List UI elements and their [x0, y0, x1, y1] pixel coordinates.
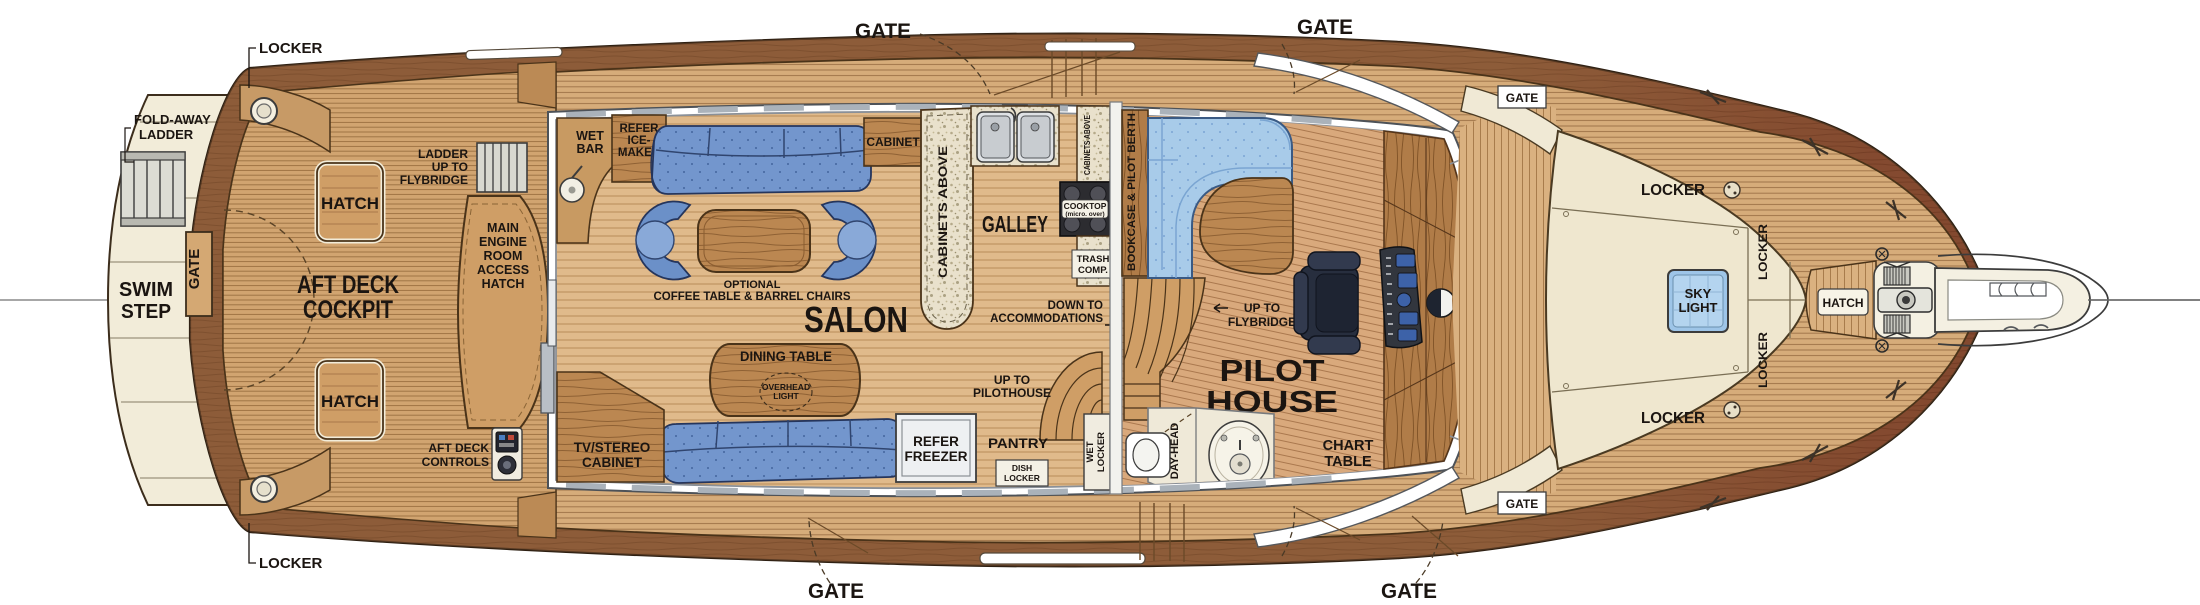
svg-text:TV/STEREO: TV/STEREO — [574, 440, 651, 455]
svg-text:FREEZER: FREEZER — [904, 449, 967, 464]
svg-text:DINING TABLE: DINING TABLE — [740, 348, 832, 364]
svg-text:LOCKER: LOCKER — [1756, 332, 1770, 388]
svg-text:FLYBRIDGE: FLYBRIDGE — [1228, 315, 1296, 329]
svg-text:BAR: BAR — [576, 142, 603, 156]
svg-text:PANTRY: PANTRY — [988, 435, 1049, 451]
svg-text:UP TO: UP TO — [1244, 301, 1280, 315]
svg-text:LOCKER: LOCKER — [259, 555, 323, 572]
svg-text:COCKPIT: COCKPIT — [303, 296, 393, 324]
svg-text:HATCH: HATCH — [1822, 296, 1863, 310]
svg-text:AFT DECK: AFT DECK — [428, 441, 489, 455]
svg-text:LOCKER: LOCKER — [1641, 182, 1705, 199]
svg-text:WET: WET — [1085, 441, 1096, 462]
svg-text:ROOM: ROOM — [484, 249, 523, 263]
svg-text:TABLE: TABLE — [1324, 454, 1372, 470]
svg-text:CONTROLS: CONTROLS — [422, 455, 489, 469]
svg-text:ACCESS: ACCESS — [477, 263, 529, 277]
svg-text:FLYBRIDGE: FLYBRIDGE — [400, 173, 468, 187]
svg-text:(micro. over): (micro. over) — [1065, 211, 1104, 218]
svg-text:CABINETS ABOVE: CABINETS ABOVE — [936, 146, 950, 278]
svg-text:HATCH: HATCH — [482, 277, 525, 291]
svg-text:LADDER: LADDER — [139, 127, 194, 142]
svg-text:GATE: GATE — [855, 20, 911, 43]
svg-text:UP TO: UP TO — [432, 160, 468, 174]
svg-text:COOKTOP: COOKTOP — [1064, 201, 1107, 211]
svg-text:SALON: SALON — [804, 299, 908, 340]
svg-text:LOCKER: LOCKER — [1096, 432, 1107, 472]
svg-text:TRASH: TRASH — [1077, 254, 1110, 265]
svg-text:GATE: GATE — [186, 249, 203, 290]
svg-text:DAY-HEAD: DAY-HEAD — [1169, 423, 1181, 479]
svg-text:OPTIONAL: OPTIONAL — [724, 279, 781, 291]
svg-text:SKY: SKY — [1685, 286, 1712, 301]
svg-text:HATCH: HATCH — [321, 194, 379, 213]
svg-text:GATE: GATE — [1506, 497, 1538, 511]
svg-text:PILOTHOUSE: PILOTHOUSE — [973, 386, 1051, 400]
svg-text:LADDER: LADDER — [418, 147, 468, 161]
svg-text:GATE: GATE — [1381, 580, 1437, 600]
svg-text:BOOKCASE & PILOT BERTH: BOOKCASE & PILOT BERTH — [1126, 113, 1138, 271]
svg-text:MAIN: MAIN — [487, 221, 519, 235]
svg-text:GATE: GATE — [808, 580, 864, 600]
svg-text:ENGINE: ENGINE — [479, 235, 527, 249]
svg-text:GATE: GATE — [1297, 16, 1353, 39]
svg-text:HATCH: HATCH — [321, 392, 379, 411]
svg-text:ICE-: ICE- — [628, 135, 651, 147]
svg-text:CABINET: CABINET — [582, 455, 643, 470]
svg-text:DISH: DISH — [1012, 463, 1032, 473]
svg-text:SWIM: SWIM — [119, 279, 173, 301]
svg-text:LOCKER: LOCKER — [1004, 473, 1040, 483]
svg-text:LOCKER: LOCKER — [259, 40, 323, 57]
svg-text:ACCOMMODATIONS: ACCOMMODATIONS — [990, 313, 1103, 325]
svg-text:LIGHT: LIGHT — [773, 391, 799, 401]
svg-text:CABINETS ABOVE: CABINETS ABOVE — [1082, 115, 1092, 175]
svg-text:GALLEY: GALLEY — [982, 211, 1048, 237]
svg-text:REFER: REFER — [913, 434, 959, 449]
svg-text:LOCKER: LOCKER — [1641, 410, 1705, 427]
svg-text:CABINET: CABINET — [866, 135, 920, 149]
svg-text:WET: WET — [576, 129, 604, 143]
svg-text:GATE: GATE — [1506, 91, 1538, 105]
svg-text:AFT DECK: AFT DECK — [297, 271, 399, 299]
svg-text:DOWN TO: DOWN TO — [1048, 300, 1103, 312]
svg-text:STEP: STEP — [121, 301, 171, 323]
svg-text:LIGHT: LIGHT — [1679, 300, 1718, 315]
svg-text:FOLD-AWAY: FOLD-AWAY — [134, 112, 211, 127]
svg-text:CHART: CHART — [1323, 438, 1374, 454]
svg-text:LOCKER: LOCKER — [1756, 224, 1770, 280]
svg-text:REFER: REFER — [620, 123, 660, 135]
svg-text:PILOT: PILOT — [1220, 353, 1325, 388]
svg-text:UP TO: UP TO — [994, 373, 1030, 387]
svg-text:COMP.: COMP. — [1078, 265, 1108, 276]
